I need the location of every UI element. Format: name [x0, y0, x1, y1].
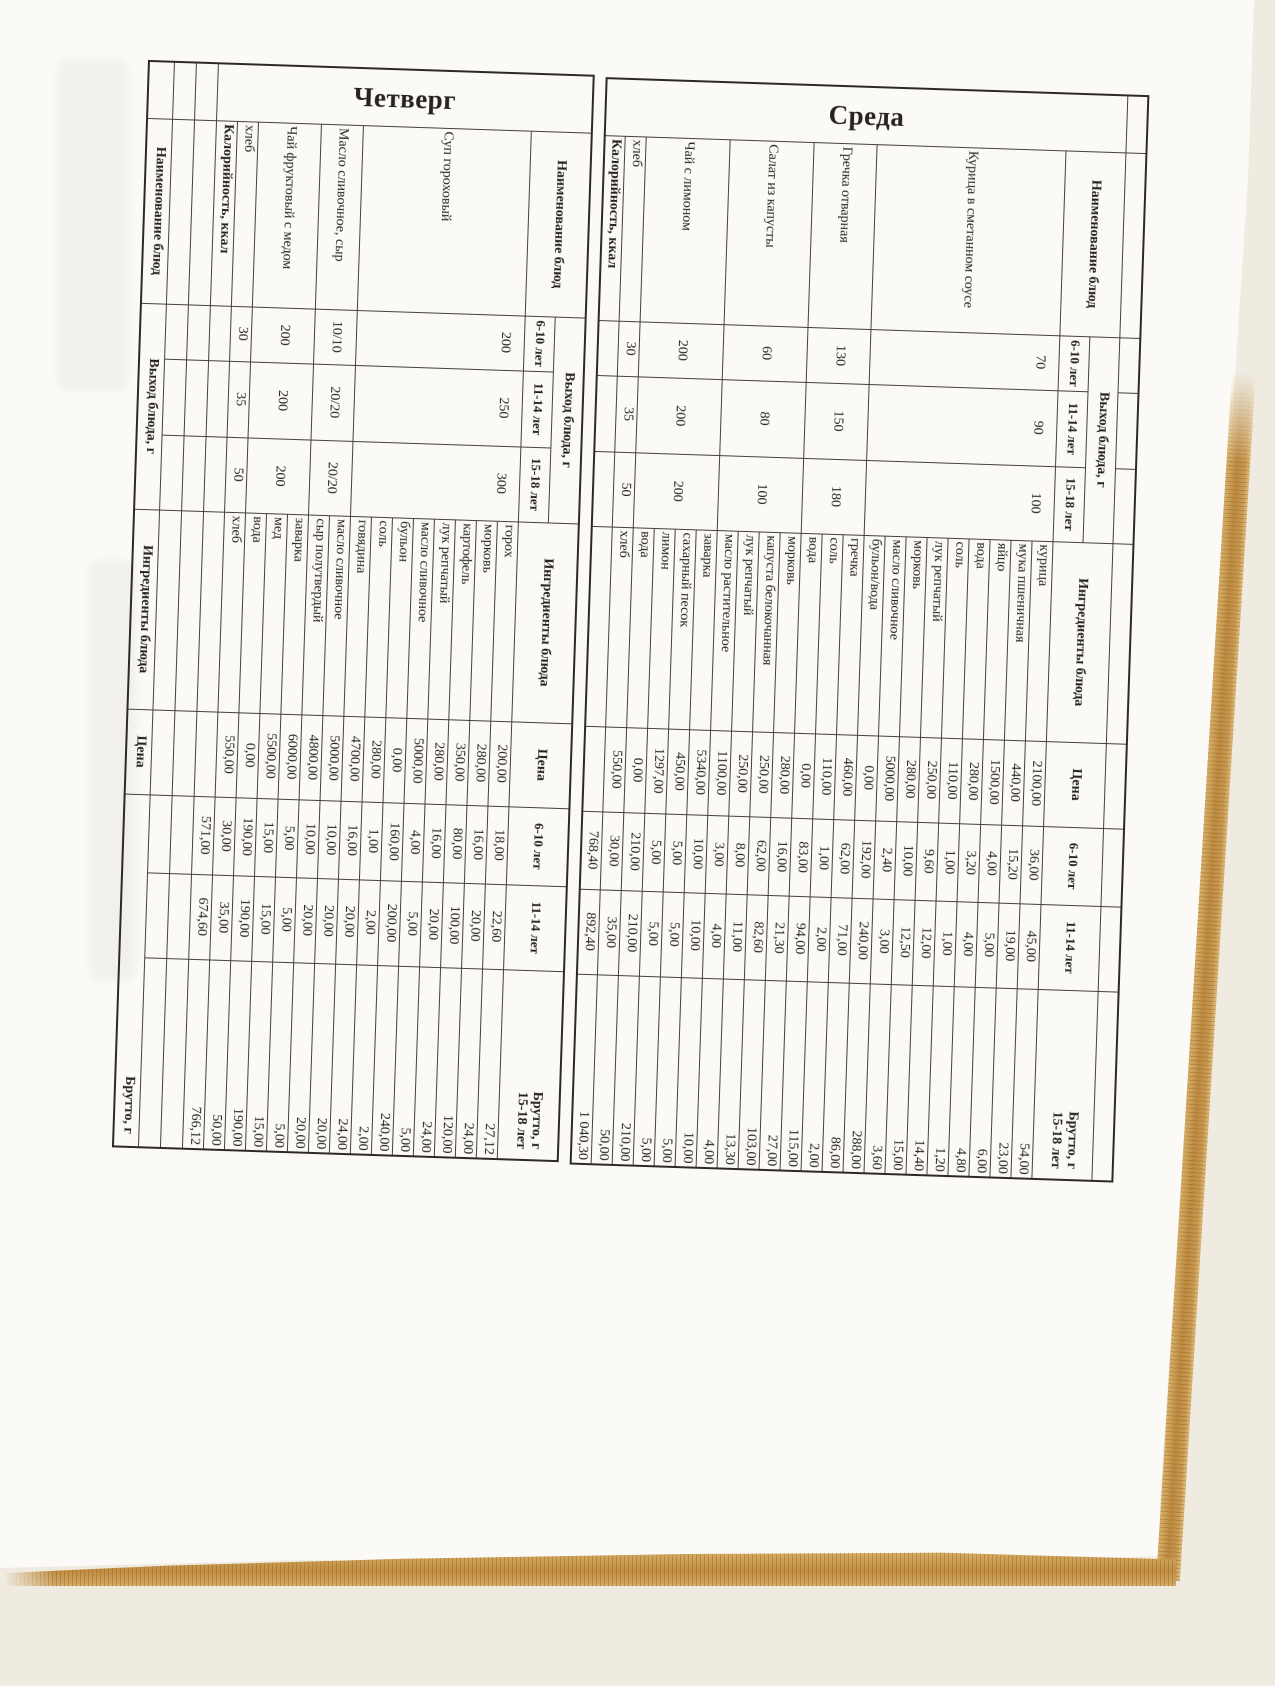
yield-cell: 35 [228, 361, 252, 438]
brutto-6-10-cell: 62,00 [748, 816, 772, 895]
brutto-6-10-cell: 190,00 [234, 797, 258, 876]
yield-cell: 200 [356, 310, 526, 371]
yield-cell: 60 [723, 324, 809, 382]
brutto-11-14-cell: 190,00 [231, 875, 255, 961]
empty-cell [1099, 906, 1122, 992]
price-cell: 5500,00 [258, 713, 282, 799]
empty-cell [173, 62, 197, 120]
yield-cell: 20/20 [309, 440, 353, 516]
price-cell: 2100,00 [1023, 740, 1047, 826]
brutto-11-14-cell: 19,00 [997, 903, 1021, 989]
yield-cell: 30 [230, 306, 253, 362]
price-cell: 280,00 [363, 717, 387, 803]
empty-cell [170, 795, 195, 874]
calories-6-10-cell: 768,40 [580, 811, 604, 890]
brutto-11-14-cell: 15,00 [252, 876, 276, 962]
brutto-6-10-cell: 16,00 [339, 801, 363, 880]
price-cell: 0,00 [855, 735, 879, 821]
yield-cell: 100 [718, 455, 804, 533]
brutto-6-10-cell: 160,00 [381, 802, 405, 881]
header-yield-age-2: 15-18 лет [519, 447, 551, 523]
scan-skew-wrapper: ЧетвергНаименование блюдВыход блюда, гИн… [0, 0, 1275, 1686]
brutto-6-10-cell: 10,00 [318, 800, 342, 879]
header-brutto-6-10: 6-10 лет [1042, 826, 1105, 906]
price-cell: 5000,00 [876, 736, 900, 822]
header-ingredients: Ингредиенты блюда [1047, 541, 1114, 743]
header-dish: Наименование блюд [526, 131, 592, 318]
empty-cell [147, 61, 175, 119]
empty-cell [582, 726, 606, 812]
price-cell: 4800,00 [300, 714, 324, 800]
empty-cell [167, 873, 192, 959]
brutto-11-14-cell: 12,00 [913, 900, 937, 986]
empty-cell [148, 794, 173, 873]
brutto-6-10-cell: 16,00 [465, 805, 489, 884]
empty-cell [1119, 337, 1141, 393]
yield-cell: 10/10 [314, 309, 358, 365]
day-title: Среда [828, 100, 905, 131]
empty-cell [1101, 828, 1124, 907]
header-brutto-6-10: 6-10 лет [507, 806, 570, 886]
next-header-price: Цена [125, 709, 154, 795]
brutto-11-14-cell: 240,00 [850, 898, 874, 984]
brutto-11-14-cell: 100,00 [441, 882, 465, 968]
brutto-6-10-cell: 4,00 [979, 824, 1003, 903]
header-price: Цена [1044, 741, 1107, 828]
brutto-11-14-cell: 10,00 [682, 892, 706, 978]
brutto-6-10-cell: 210,00 [622, 812, 646, 891]
empty-cell [151, 709, 176, 795]
brutto-11-14-cell: 12,50 [892, 899, 916, 985]
brutto-6-10-cell: 5,00 [276, 799, 300, 878]
yield-cell: 20/20 [312, 364, 356, 441]
yield-cell: 250 [353, 365, 523, 447]
brutto-11-14-cell: 5,00 [661, 891, 685, 977]
empty-cell [195, 63, 219, 121]
yield-cell: 50 [225, 437, 248, 513]
brutto-6-10-cell: 3,00 [706, 815, 730, 894]
brutto-11-14-cell: 71,00 [829, 897, 853, 983]
brutto-6-10-cell: 30,00 [213, 797, 237, 876]
brutto-11-14-cell: 1,00 [934, 901, 958, 987]
brutto-6-10-cell: 1,00 [811, 818, 835, 897]
header-yield-age-2: 15-18 лет [1054, 466, 1086, 542]
calories-6-10-cell: 571,00 [192, 796, 216, 875]
empty-cell [187, 304, 211, 360]
price-cell: 110,00 [813, 733, 837, 819]
header-brutto-11-14: 11-14 лет [504, 884, 567, 971]
empty-cell [1104, 743, 1127, 829]
empty-cell [592, 451, 615, 527]
empty-cell [597, 320, 620, 376]
calories-11-14-cell: 892,40 [577, 889, 601, 975]
empty-cell [182, 435, 206, 511]
brutto-6-10-cell: 4,00 [402, 803, 426, 882]
yield-cell: 180 [802, 458, 867, 535]
price-cell: 5340,00 [687, 729, 711, 815]
dish-name-cell: Гречка отварная [809, 142, 878, 329]
brutto-6-10-cell: 1,00 [360, 801, 384, 880]
yield-cell: 150 [804, 382, 869, 460]
price-cell: 6000,00 [279, 714, 303, 800]
price-cell: 110,00 [939, 738, 963, 824]
menu-table-thursday: ЧетвергНаименование блюдВыход блюда, гИн… [112, 60, 595, 1162]
brutto-6-10-cell: 62,00 [832, 819, 856, 898]
price-cell: 250,00 [750, 731, 774, 817]
brutto-11-14-cell: 20,00 [420, 882, 444, 968]
brutto-11-14-cell: 35,00 [210, 875, 234, 961]
brutto-6-10-cell: 30,00 [601, 811, 625, 890]
yield-cell: 50 [613, 452, 636, 528]
brutto-11-14-cell: 22,60 [483, 884, 507, 970]
empty-cell [1114, 468, 1136, 544]
brutto-6-10-cell: 80,00 [444, 804, 468, 883]
brutto-11-14-cell: 2,00 [357, 879, 381, 965]
day-title: Четверг [353, 82, 456, 114]
brutto-6-10-cell: 36,00 [1021, 825, 1045, 904]
brutto-11-14-cell: 5,00 [976, 902, 1000, 988]
brutto-11-14-cell: 210,00 [619, 890, 643, 976]
price-cell: 460,00 [834, 734, 858, 820]
brutto-11-14-cell: 11,00 [724, 894, 748, 980]
brutto-11-14-cell: 2,00 [808, 896, 832, 982]
brutto-6-10-cell: 3,20 [958, 823, 982, 902]
yield-cell: 200 [639, 321, 725, 379]
empty-cell [185, 359, 210, 436]
brutto-6-10-cell: 2,40 [874, 820, 898, 899]
brutto-6-10-cell: 18,00 [486, 806, 510, 885]
brutto-11-14-cell: 3,00 [871, 898, 895, 984]
yield-cell: 80 [720, 379, 806, 458]
price-cell: 200,00 [488, 721, 512, 807]
brutto-6-10-cell: 10,00 [685, 814, 709, 893]
header-brutto-11-14: 11-14 лет [1039, 904, 1102, 991]
dish-name-cell: Чай с лимоном [641, 137, 731, 325]
price-cell: 250,00 [729, 731, 753, 817]
brutto-11-14-cell: 94,00 [787, 896, 811, 982]
empty-cell [165, 304, 189, 360]
header-yield-age-1: 11-14 лет [521, 371, 554, 448]
price-cell: 280,00 [771, 732, 795, 818]
header-yield-age-0: 6-10 лет [1059, 335, 1091, 391]
empty-cell [1126, 95, 1148, 153]
empty-cell [163, 359, 188, 436]
dish-name-cell: Масло сливочное, сыр [316, 124, 364, 310]
price-cell: 1297,00 [645, 728, 669, 814]
price-cell: 280,00 [467, 720, 491, 806]
price-cell: 0,00 [384, 717, 408, 803]
brutto-11-14-cell: 45,00 [1018, 903, 1042, 989]
yield-cell: 200 [246, 437, 311, 514]
yield-cell: 300 [351, 441, 521, 522]
price-cell: 1500,00 [981, 739, 1005, 825]
price-cell: 0,00 [624, 727, 648, 813]
dish-name-cell: Суп гороховый [358, 125, 532, 315]
empty-cell [145, 872, 170, 958]
yield-cell: 90 [867, 384, 1058, 466]
price-cell: 250,00 [918, 737, 942, 823]
brutto-6-10-cell: 1,00 [937, 823, 961, 902]
price-cell: 280,00 [960, 738, 984, 824]
brutto-6-10-cell: 15,00 [255, 798, 279, 877]
price-cell: 350,00 [446, 719, 470, 805]
yield-cell: 30 [618, 321, 641, 377]
empty-cell [594, 375, 618, 452]
brutto-11-14-cell: 21,30 [766, 895, 790, 981]
brutto-6-10-cell: 15,20 [1000, 825, 1024, 904]
menu-table-wednesday: СредаНаименование блюдВыход блюда, гИнгр… [570, 77, 1150, 1182]
brutto-6-10-cell: 5,00 [643, 813, 667, 892]
brutto-6-10-cell: 8,00 [727, 816, 751, 895]
header-yield-age-0: 6-10 лет [524, 316, 556, 372]
header-brutto-15-18: Брутто, г15-18 лет [1032, 989, 1098, 1181]
menu-table: ЧетвергНаименование блюдВыход блюда, гИн… [112, 60, 595, 1162]
brutto-11-14-cell: 5,00 [399, 881, 423, 967]
price-cell: 550,00 [603, 726, 627, 812]
brutto-11-14-cell: 4,00 [955, 901, 979, 987]
dish-name-cell: Чай фруктовый с медом [253, 122, 322, 309]
brutto-6-10-cell: 10,00 [297, 799, 321, 878]
header-yield-age-1: 11-14 лет [1056, 390, 1089, 467]
empty-cell [160, 435, 184, 511]
brutto-6-10-cell: 10,00 [895, 821, 919, 900]
brutto-11-14-cell: 5,00 [640, 891, 664, 977]
price-cell: 450,00 [666, 729, 690, 815]
empty-cell [195, 711, 219, 797]
brutto-6-10-cell: 5,00 [664, 814, 688, 893]
price-cell: 280,00 [897, 736, 921, 822]
brutto-6-10-cell: 16,00 [769, 817, 793, 896]
empty-cell [173, 710, 198, 796]
brutto-6-10-cell: 83,00 [790, 818, 814, 897]
dish-name-cell: Курица в сметанном соусе [871, 144, 1066, 335]
header-brutto-15-18: Брутто, г15-18 лет [498, 969, 564, 1161]
empty-cell [1116, 392, 1139, 469]
brutto-6-10-cell: 9,60 [916, 822, 940, 901]
price-cell: 5000,00 [321, 715, 345, 801]
brutto-11-14-cell: 82,60 [745, 894, 769, 980]
price-cell: 5000,00 [405, 718, 429, 804]
brutto-6-10-cell: 16,00 [423, 804, 447, 883]
header-price: Цена [509, 721, 572, 808]
brutto-11-14-cell: 20,00 [462, 883, 486, 969]
yield-cell: 200 [249, 362, 314, 440]
price-cell: 0,00 [792, 733, 816, 819]
brutto-11-14-cell: 4,00 [703, 893, 727, 979]
header-dish: Наименование блюд [1060, 150, 1126, 337]
brutto-11-14-cell: 20,00 [336, 879, 360, 965]
brutto-11-14-cell: 20,00 [315, 878, 339, 964]
price-cell: 440,00 [1002, 740, 1026, 826]
price-cell: 1100,00 [708, 730, 732, 816]
price-cell: 280,00 [425, 719, 449, 805]
yield-cell: 200 [634, 452, 720, 530]
yield-cell: 70 [870, 329, 1061, 390]
yield-cell: 100 [865, 460, 1056, 541]
brutto-11-14-cell: 5,00 [273, 877, 297, 963]
price-cell: 4700,00 [342, 716, 366, 802]
price-cell: 0,00 [237, 712, 261, 798]
yield-cell: 35 [615, 376, 639, 453]
brutto-11-14-cell: 35,00 [598, 889, 622, 975]
price-cell: 550,00 [216, 712, 240, 798]
empty-cell [207, 360, 231, 437]
yield-cell: 200 [636, 376, 722, 455]
header-ingredients: Ингредиенты блюда [512, 522, 579, 724]
empty-cell [209, 305, 232, 361]
empty-cell [204, 436, 227, 512]
menu-table: СредаНаименование блюдВыход блюда, гИнгр… [570, 77, 1150, 1182]
yield-cell: 200 [251, 307, 316, 364]
yield-cell: 130 [807, 327, 872, 384]
brutto-6-10-cell: 192,00 [853, 820, 877, 899]
calories-11-14-cell: 674,60 [189, 874, 213, 960]
brutto-11-14-cell: 20,00 [294, 877, 318, 963]
dish-name-cell: Салат из капусты [725, 139, 815, 327]
brutto-11-14-cell: 200,00 [378, 880, 402, 966]
